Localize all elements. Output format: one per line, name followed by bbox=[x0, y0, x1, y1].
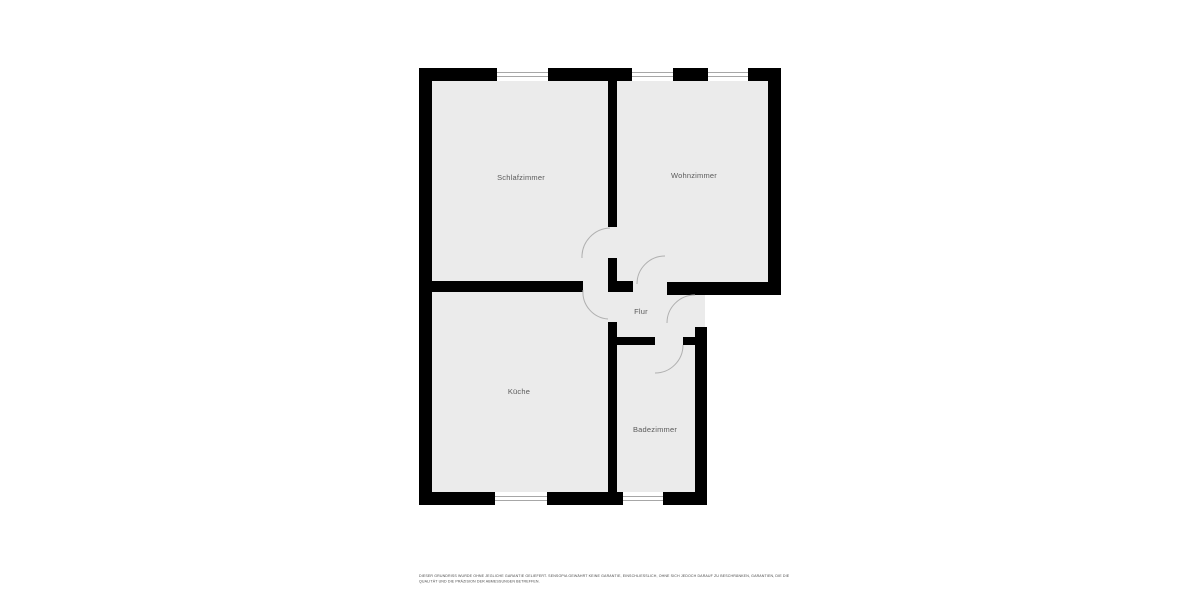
room-flur-floor bbox=[617, 292, 695, 337]
room-wohnzimmer-floor bbox=[617, 81, 768, 282]
window-symbol bbox=[495, 492, 547, 505]
window-symbol bbox=[708, 68, 748, 81]
disclaimer-line-1: DIESER GRUNDRISS WURDE OHNE JEGLICHE GAR… bbox=[419, 574, 790, 578]
room-label-schlafzimmer: Schlafzimmer bbox=[497, 173, 545, 182]
disclaimer-line-2: QUALITÄT UND DIE PRÄZISION DER ABMESSUNG… bbox=[419, 580, 540, 584]
room-label-kueche: Küche bbox=[508, 387, 530, 396]
door-opening-kueche-side bbox=[608, 290, 617, 322]
door-opening-schlafzimmer bbox=[608, 227, 617, 258]
room-label-flur: Flur bbox=[634, 307, 648, 316]
door-opening-kueche-top bbox=[583, 281, 608, 292]
door-opening-wohnzimmer bbox=[633, 282, 667, 292]
door-opening-entrance bbox=[695, 295, 705, 327]
room-label-wohnzimmer: Wohnzimmer bbox=[671, 171, 717, 180]
room-label-badezimmer: Badezimmer bbox=[633, 425, 677, 434]
room-badezimmer-floor bbox=[617, 345, 695, 492]
floor-plan-svg: Schlafzimmer Wohnzimmer Flur Küche Badez… bbox=[0, 0, 1200, 600]
wall-right-upper bbox=[768, 68, 781, 295]
wall-flur-top bbox=[608, 281, 633, 292]
door-opening-badezimmer bbox=[655, 337, 683, 345]
wall-flur-badezimmer-left bbox=[617, 337, 655, 345]
window-symbol bbox=[623, 492, 663, 505]
wall-wohnzimmer-bottom bbox=[667, 282, 781, 295]
wall-schlafzimmer-kueche bbox=[432, 281, 583, 292]
floor-plan-page: Schlafzimmer Wohnzimmer Flur Küche Badez… bbox=[0, 0, 1200, 600]
wall-divider-upper bbox=[608, 81, 617, 227]
disclaimer: DIESER GRUNDRISS WURDE OHNE JEGLICHE GAR… bbox=[419, 574, 790, 584]
wall-flur-badezimmer-right bbox=[683, 337, 707, 345]
wall-divider-lower bbox=[608, 322, 617, 492]
window-symbol bbox=[632, 68, 673, 81]
wall-bottom bbox=[419, 492, 707, 505]
wall-right-lower bbox=[695, 327, 707, 505]
wall-left bbox=[419, 68, 432, 505]
window-symbol bbox=[497, 68, 548, 81]
